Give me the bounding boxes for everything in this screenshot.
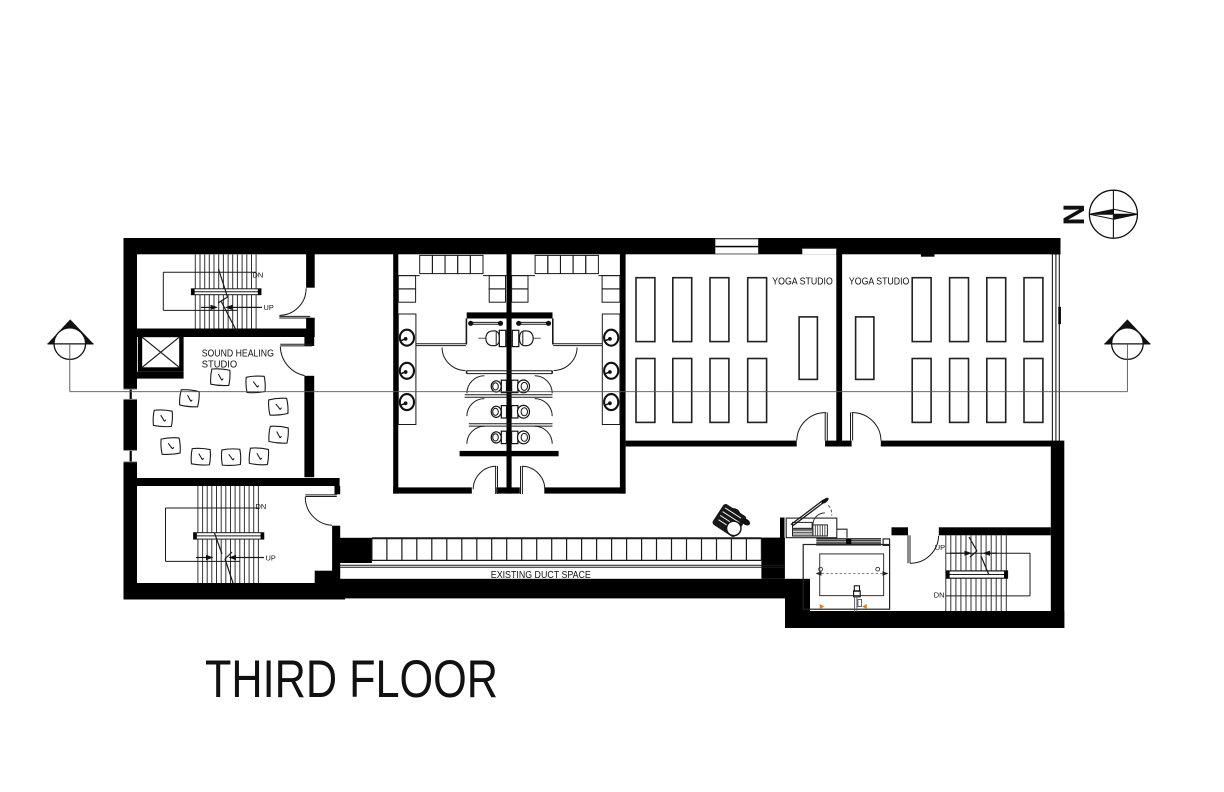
svg-text:DN: DN — [253, 271, 264, 280]
svg-text:UP: UP — [264, 303, 274, 312]
svg-text:THIRD FLOOR: THIRD FLOOR — [205, 650, 498, 709]
svg-text:UP: UP — [935, 543, 945, 552]
svg-text:YOGA STUDIO: YOGA STUDIO — [772, 276, 833, 287]
svg-text:DN: DN — [256, 502, 267, 511]
svg-text:DN: DN — [934, 590, 945, 599]
svg-text:UP: UP — [266, 554, 276, 563]
svg-text:YOGA STUDIO: YOGA STUDIO — [849, 276, 910, 287]
svg-text:N: N — [1058, 204, 1091, 226]
svg-text:SOUND HEALING: SOUND HEALING — [202, 349, 274, 360]
svg-text:EXISTING DUCT SPACE: EXISTING DUCT SPACE — [491, 570, 591, 581]
